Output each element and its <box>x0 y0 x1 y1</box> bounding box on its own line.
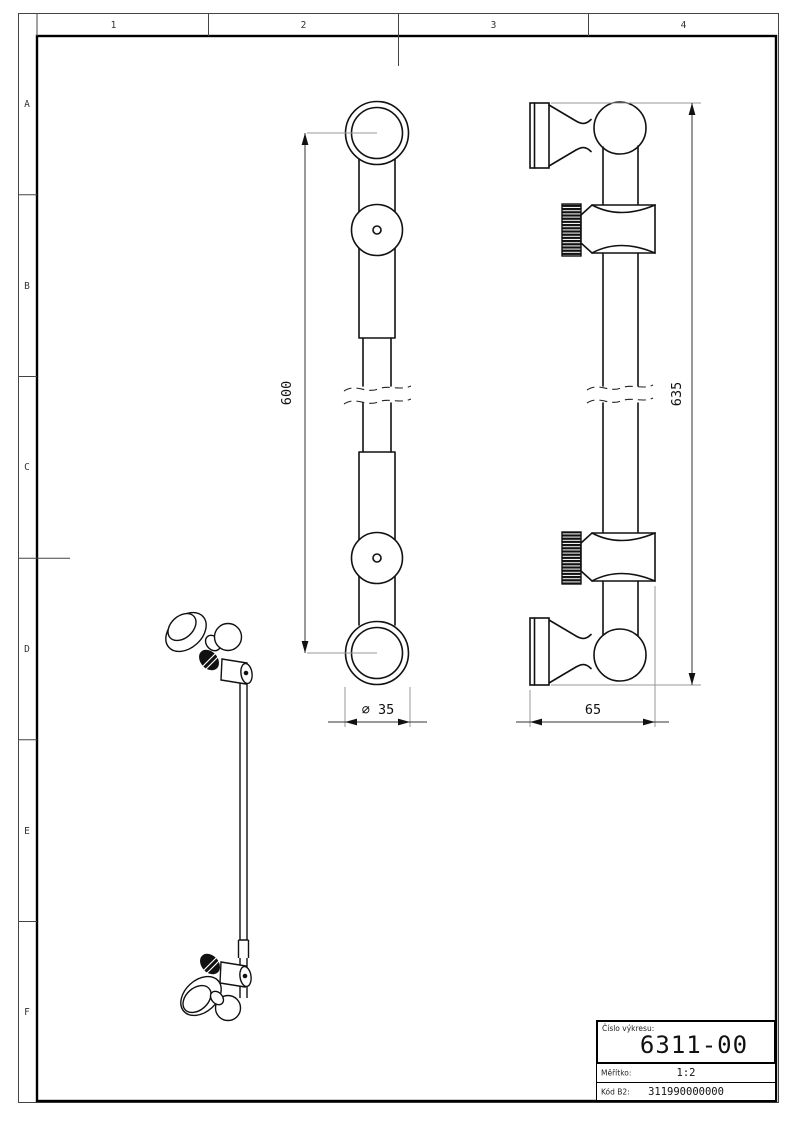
arrowhead-right <box>643 719 655 726</box>
title-block-code-row: Kód B2: 311990000000 <box>596 1083 776 1101</box>
grid-row-label-d: D <box>24 644 30 655</box>
drawing-number: 6311-00 <box>598 1031 774 1059</box>
grid-column-label-2: 2 <box>301 20 307 31</box>
front-view <box>344 102 411 685</box>
drawing-canvas: 1 2 3 4 A B C D E F <box>0 0 794 1123</box>
top-cone <box>549 105 591 166</box>
break-line <box>344 386 411 391</box>
bottom-cone <box>549 620 591 683</box>
code-value: 311990000000 <box>597 1086 775 1098</box>
arrowhead-up <box>689 103 696 115</box>
grid-row-label-e: E <box>24 826 30 837</box>
arrowhead-left <box>345 719 357 726</box>
dim-diameter-label: ∅ 35 <box>362 702 395 718</box>
top-wall-plate <box>530 103 549 168</box>
arrowhead-left <box>530 719 542 726</box>
dim-635-label: 635 <box>669 382 685 406</box>
column-dividers <box>37 14 589 37</box>
break-line <box>587 385 653 390</box>
grid-row-label-f: F <box>24 1007 30 1018</box>
iso-view <box>158 605 253 1024</box>
arrowhead-right <box>398 719 410 726</box>
upper-slider-hole <box>373 226 381 234</box>
upper-knurled-knob <box>562 204 581 256</box>
grid-row-label-a: A <box>24 99 30 110</box>
inner-border <box>37 36 776 1101</box>
grid-column-label-1: 1 <box>111 20 117 31</box>
lower-slider-hole <box>373 554 381 562</box>
grid-row-label-b: B <box>24 281 30 292</box>
dim-65-label: 65 <box>585 702 601 718</box>
title-block-scale-row: Měřítko: 1:2 <box>596 1064 776 1083</box>
dim-600-label: 600 <box>279 381 295 405</box>
title-block: Číslo výkresu: 6311-00 Měřítko: 1:2 Kód … <box>596 1020 776 1101</box>
side-view <box>530 102 655 685</box>
bottom-ball-joint <box>594 629 646 681</box>
bottom-wall-plate <box>530 618 549 685</box>
arrowhead-up <box>302 133 309 145</box>
scale-value: 1:2 <box>597 1067 775 1079</box>
iso-bottom-slider-hole <box>243 974 247 978</box>
arrowhead-down <box>689 673 696 685</box>
dimension-diameter-35: ∅ 35 <box>328 687 427 727</box>
grid-row-label-c: C <box>24 462 30 473</box>
iso-tube <box>239 682 249 998</box>
grid-column-label-4: 4 <box>681 20 687 31</box>
grid-column-label-3: 3 <box>491 20 497 31</box>
iso-top-slider-hole <box>244 671 248 675</box>
middle-tube <box>363 338 391 452</box>
iso-top-ball <box>215 624 242 651</box>
arrowhead-down <box>302 641 309 653</box>
break-line <box>344 399 411 404</box>
break-line <box>587 398 653 403</box>
title-block-number-row: Číslo výkresu: 6311-00 <box>596 1020 776 1064</box>
lower-knurled-knob <box>562 532 581 584</box>
drawing-sheet: 1 2 3 4 A B C D E F <box>0 0 794 1123</box>
row-dividers <box>19 195 38 922</box>
dimension-635: 635 <box>551 103 701 685</box>
